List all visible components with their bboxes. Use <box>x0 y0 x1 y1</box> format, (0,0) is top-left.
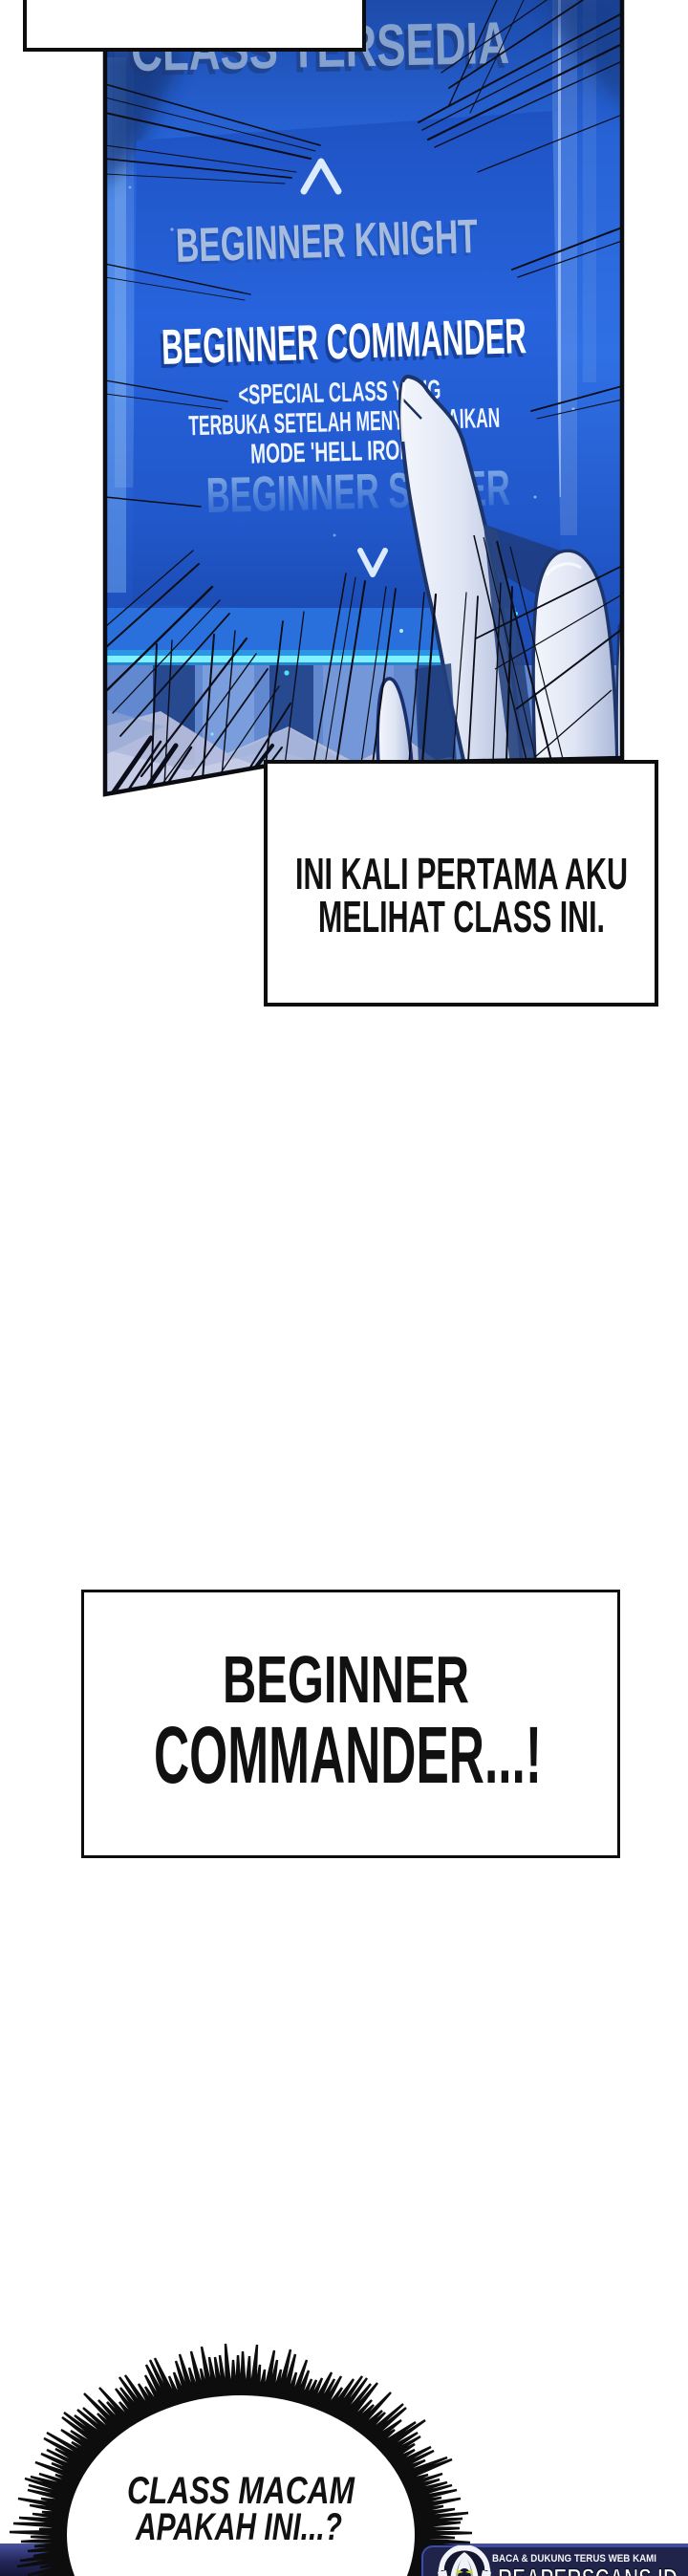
svg-text:BEGINNER KNIGHT: BEGINNER KNIGHT <box>175 209 479 272</box>
svg-text:MELIHAT CLASS INI.: MELIHAT CLASS INI. <box>318 892 605 942</box>
svg-text:COMMANDER...!: COMMANDER...! <box>154 1710 542 1800</box>
svg-text:APAKAH INI...?: APAKAH INI...? <box>135 2506 342 2548</box>
svg-text:BEGINNER COMMANDER: BEGINNER COMMANDER <box>161 309 527 376</box>
svg-text:BEGINNER: BEGINNER <box>223 1642 469 1717</box>
svg-text:REAPERSCANS.ID: REAPERSCANS.ID <box>498 2564 677 2576</box>
